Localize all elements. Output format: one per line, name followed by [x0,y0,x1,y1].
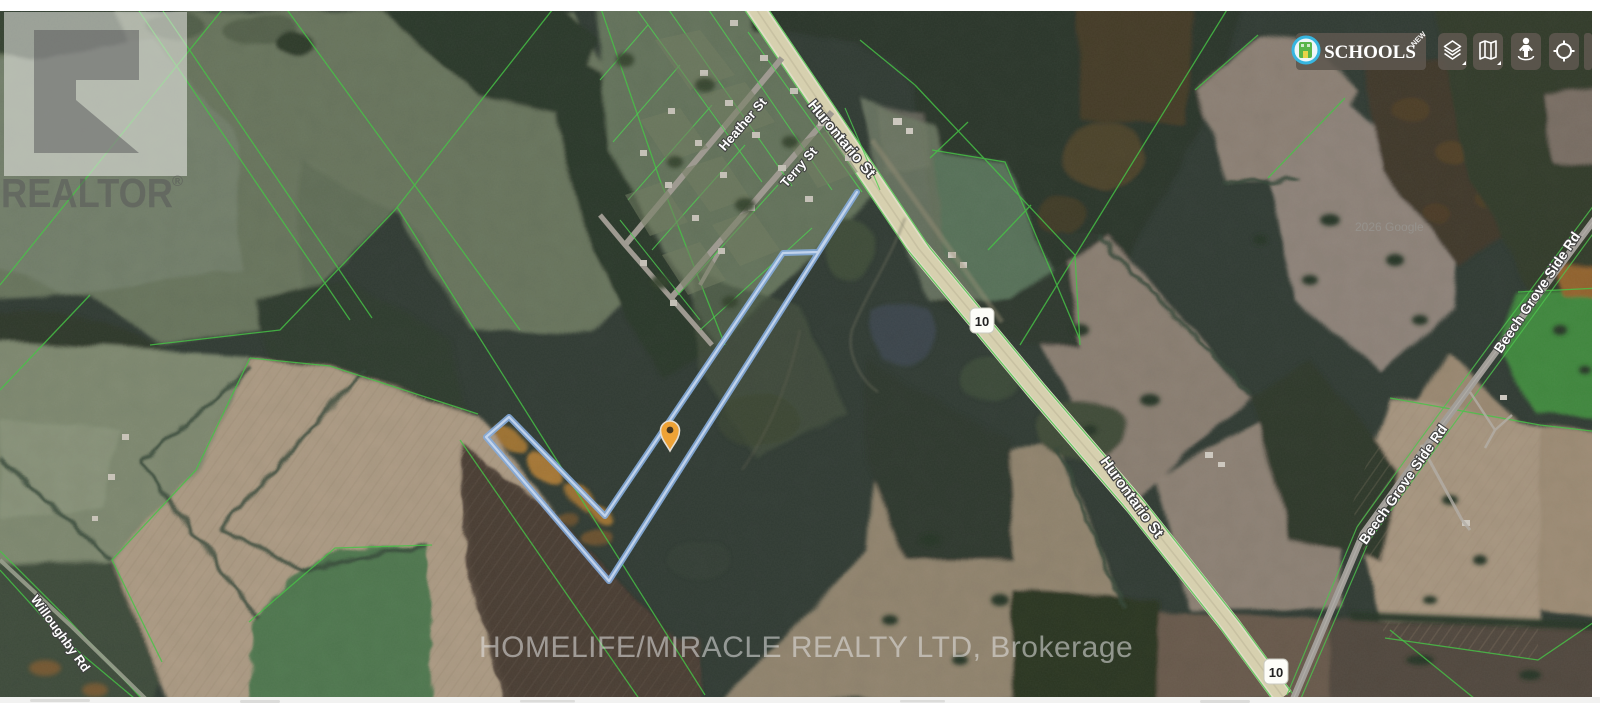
svg-text:10: 10 [975,314,989,329]
svg-text:HOMELIFE/MIRACLE REALTY LTD, B: HOMELIFE/MIRACLE REALTY LTD, Brokerage [479,631,1133,664]
svg-text:10: 10 [1269,665,1283,680]
svg-text:REALTOR: REALTOR [1,170,173,216]
svg-text:SCHOOLS: SCHOOLS [1324,42,1416,63]
svg-text:2026 Google: 2026 Google [1355,220,1424,234]
svg-text:®: ® [172,173,183,190]
